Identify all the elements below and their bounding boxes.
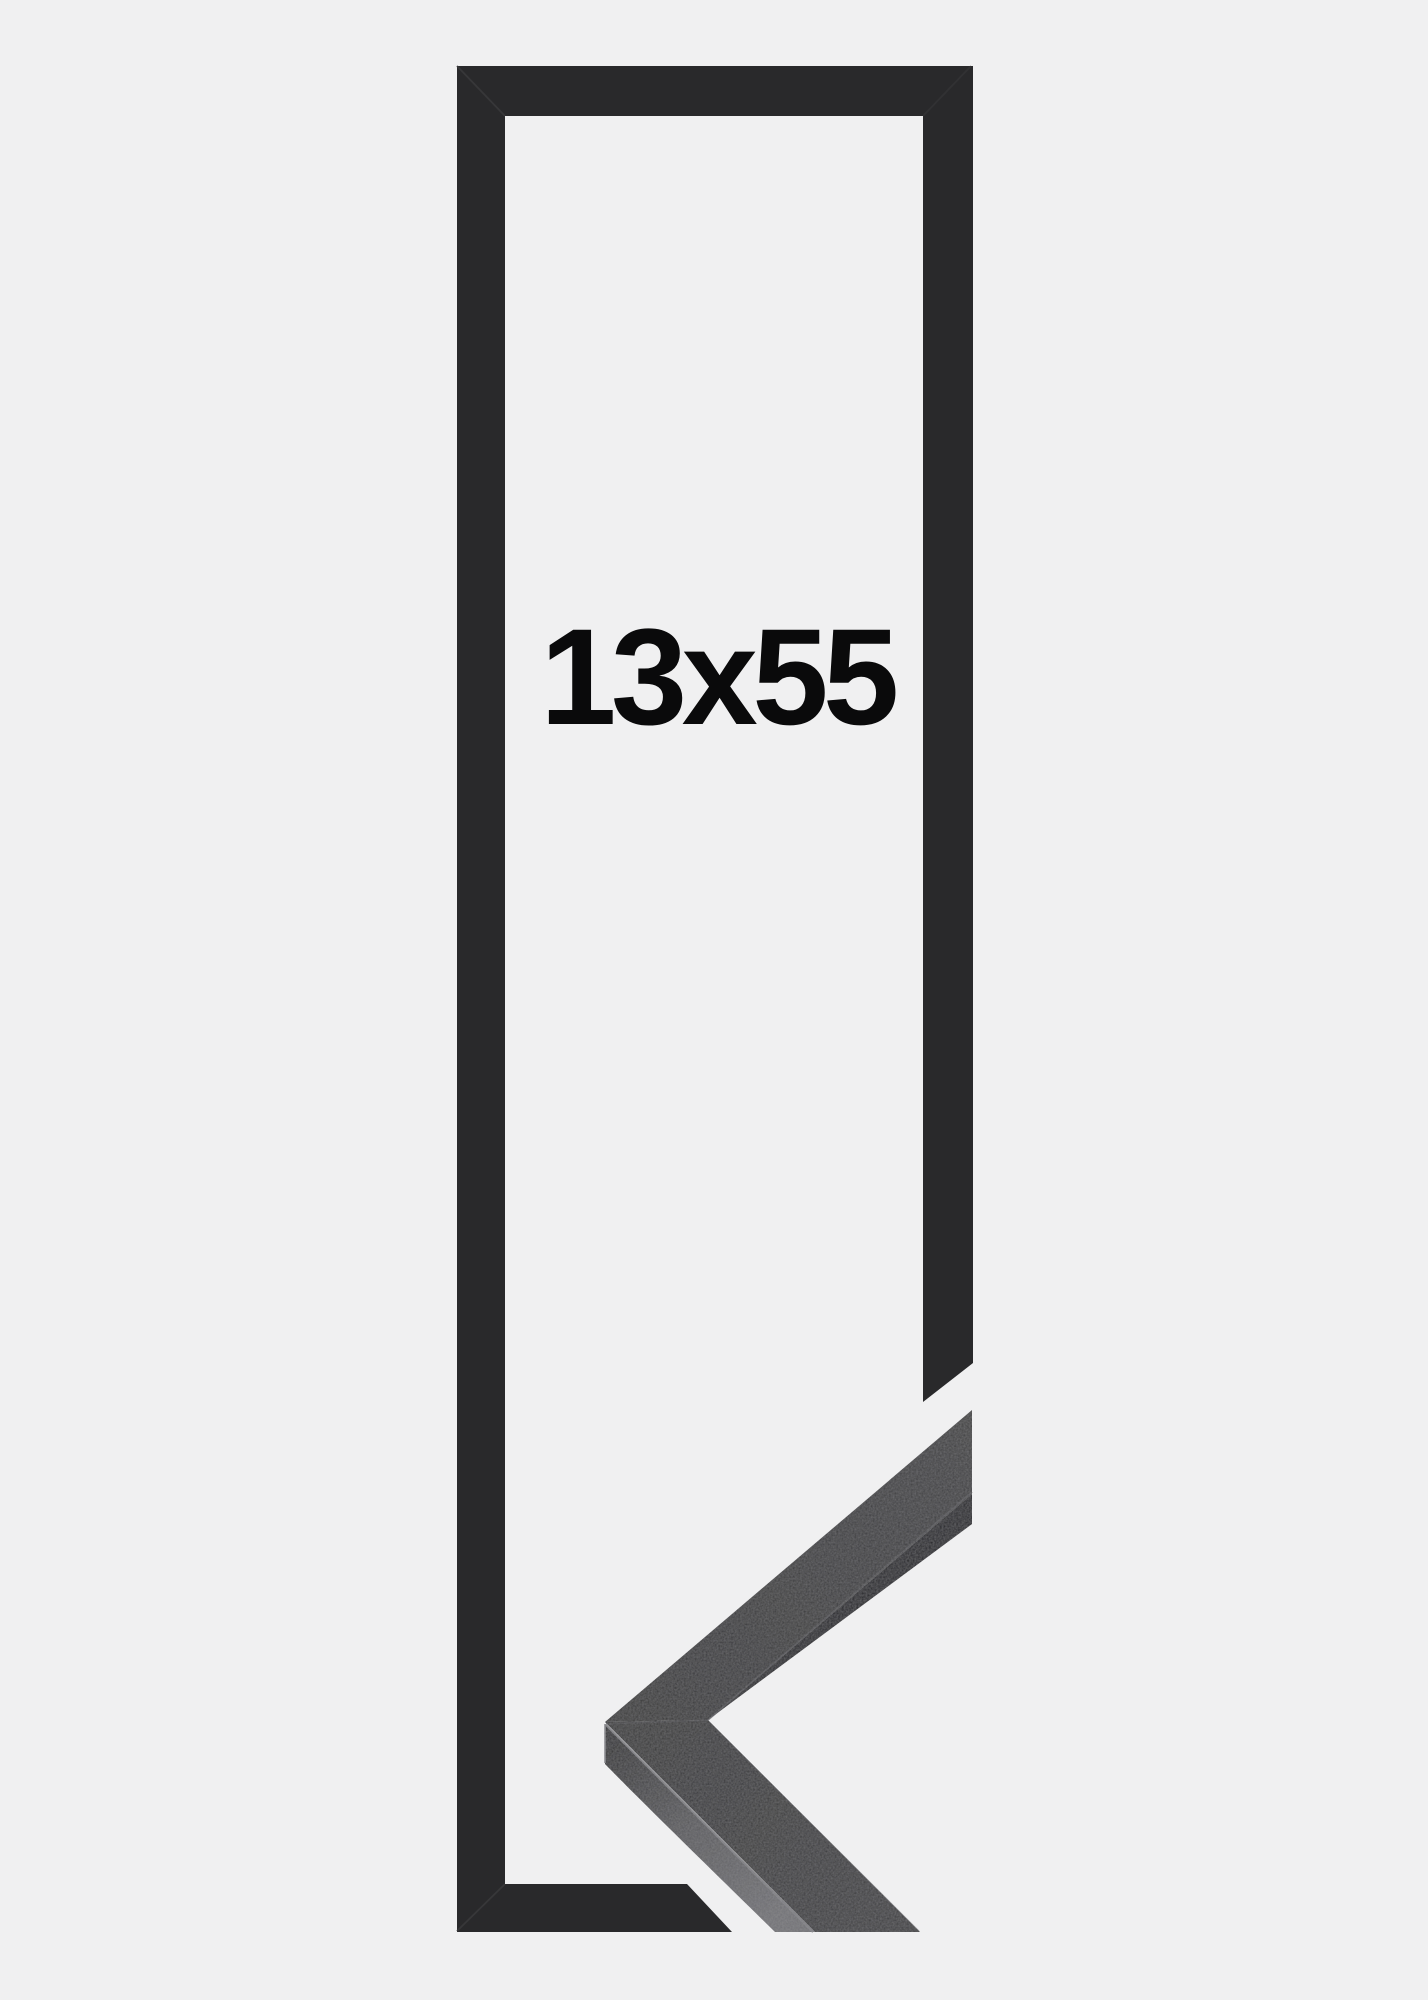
frame-size-label: 13x55 [540, 601, 896, 754]
frame-product-illustration: 13x55 [0, 0, 1428, 2000]
product-image-canvas: 13x55 [0, 0, 1428, 2000]
